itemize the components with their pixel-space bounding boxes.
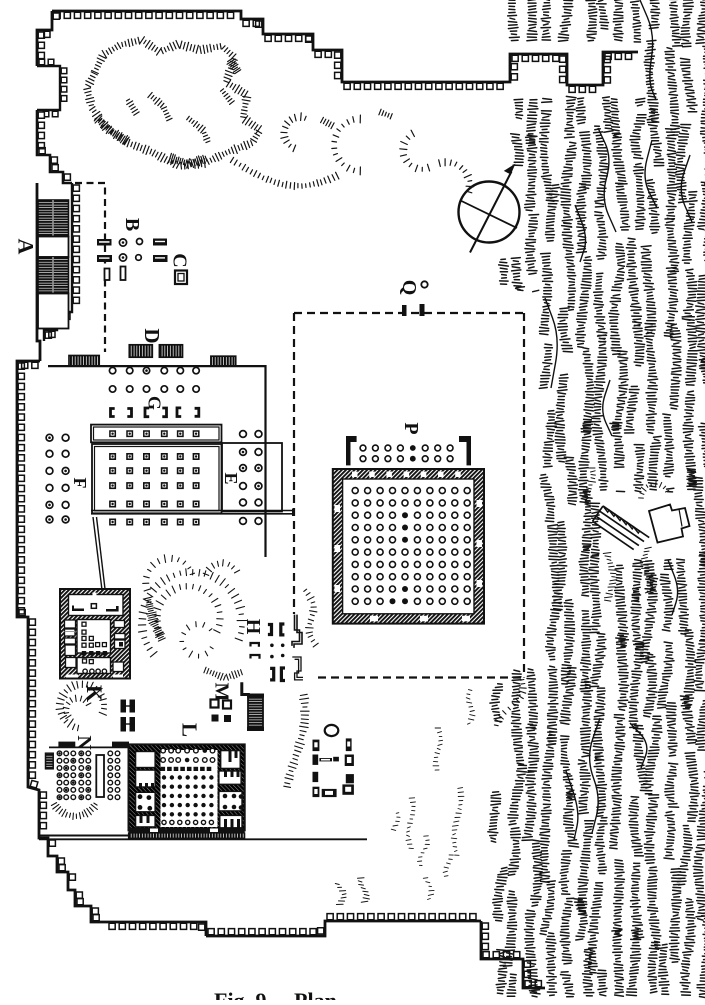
- svg-text:F: F: [70, 478, 90, 489]
- svg-text:G: G: [145, 396, 165, 410]
- svg-text:B: B: [121, 218, 143, 231]
- svg-text:C: C: [169, 253, 191, 267]
- svg-text:Q: Q: [398, 280, 420, 296]
- svg-text:D: D: [140, 328, 164, 343]
- svg-text:L: L: [178, 723, 202, 737]
- svg-text:Fig. 9.—Plan: Fig. 9.—Plan: [214, 988, 337, 1000]
- svg-text:A: A: [13, 239, 38, 255]
- svg-text:H: H: [242, 619, 264, 635]
- svg-text:P: P: [400, 422, 422, 434]
- svg-text:E: E: [221, 472, 241, 484]
